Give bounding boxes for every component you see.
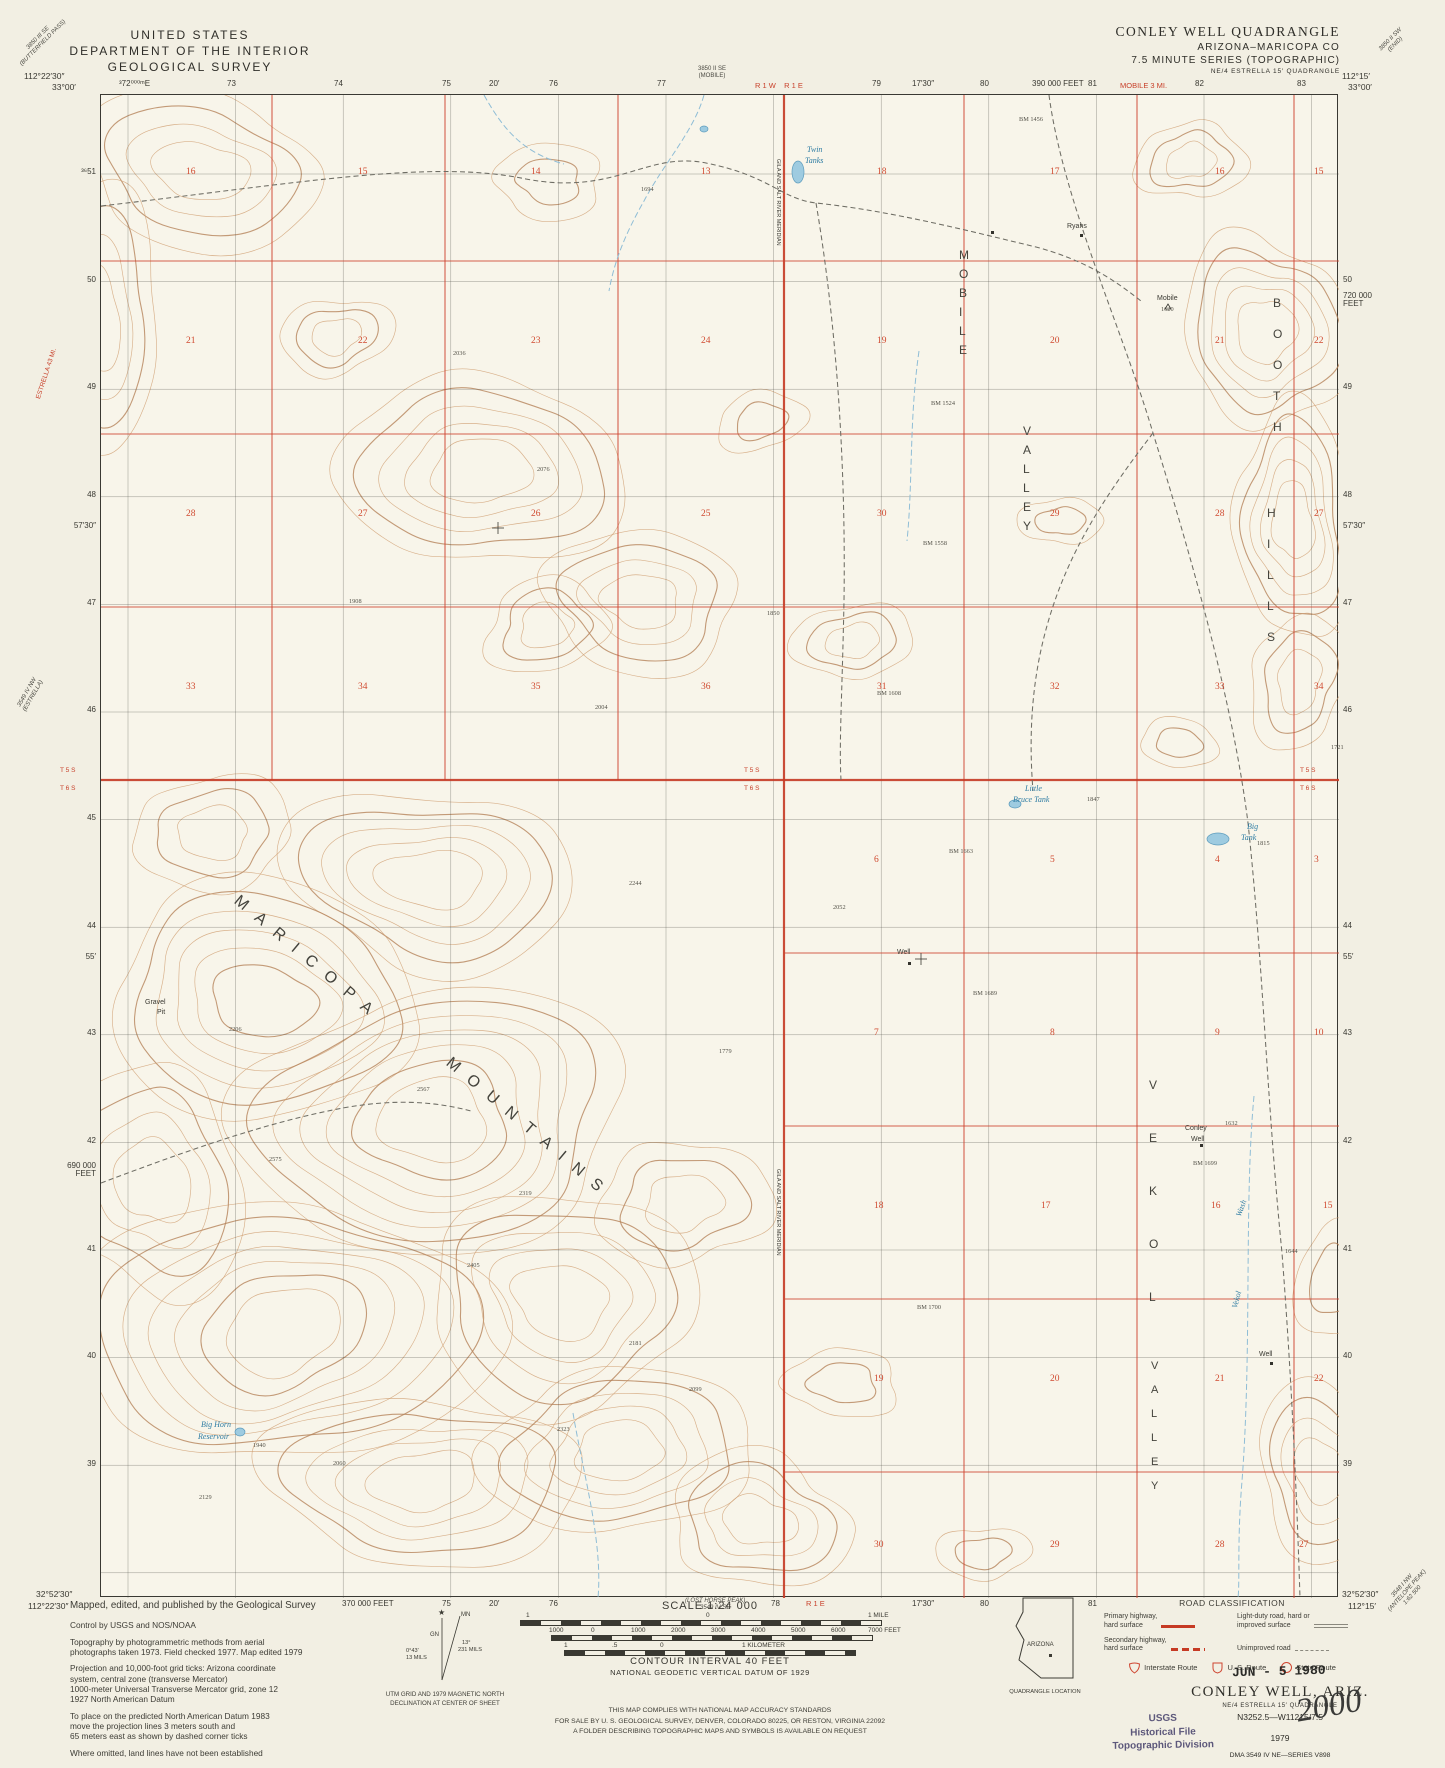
road-class-label: Secondary highway, hard surface: [1104, 1637, 1167, 1655]
grid-tick-left: 47: [58, 599, 96, 607]
section-number: 7: [874, 1029, 879, 1039]
spot-elevation: 2181: [629, 1341, 642, 1348]
agency-line-1: UNITED STATES: [60, 28, 320, 42]
section-number: 24: [701, 337, 711, 347]
physiographic-name-letter: V: [1151, 1361, 1158, 1373]
road-class-item: Unimproved road: [1237, 1637, 1360, 1655]
sheet-name: CONLEY WELL, ARIZ.: [1150, 1684, 1410, 1701]
map-canvas: [101, 95, 1339, 1598]
section-number: 14: [531, 168, 541, 178]
spot-elevation: 1847: [1087, 797, 1100, 804]
grid-tick-left: 48: [58, 491, 96, 499]
feature-label: Pit: [157, 1009, 165, 1016]
spot-elevation: 2004: [595, 705, 608, 712]
township-label: T 5 S: [744, 768, 759, 775]
section-number: 10: [1314, 1029, 1324, 1039]
scale-heading: SCALE 1:24 000: [460, 1600, 960, 1612]
spot-elevation: 2099: [689, 1387, 702, 1394]
grid-tick-top: 74: [334, 80, 343, 88]
quad-title: CONLEY WELL QUADRANGLE: [920, 24, 1340, 40]
physiographic-name-letter: H: [1273, 421, 1282, 434]
section-number: 22: [358, 337, 368, 347]
usgs-historical-stamp: USGSHistorical FileTopographic Division: [1078, 1711, 1249, 1754]
sheet-subtitle: NE/4 ESTRELLA 15′ QUADRANGLE: [1150, 1703, 1410, 1709]
grid-tick-right: 48: [1343, 491, 1352, 499]
feature-label: Conley: [1185, 1125, 1207, 1132]
grid-tick-top: ³72⁰⁰⁰ᵐE: [119, 80, 150, 88]
physiographic-name-letter: E: [1151, 1457, 1158, 1469]
grid-tick-bottom: 81: [1088, 1600, 1097, 1608]
township-label: T 5 S: [60, 768, 75, 775]
grid-tick-left: 50: [58, 276, 96, 284]
water-feature-label: Big: [1247, 823, 1258, 831]
spot-elevation: 2052: [833, 905, 846, 912]
section-number: 27: [1299, 1541, 1309, 1551]
agency-line-3: GEOLOGICAL SURVEY: [60, 60, 320, 74]
svg-text:ARIZONA: ARIZONA: [1027, 1642, 1054, 1648]
adjoining-quad-note: 3548 I NW (ANTELOPE PEAK) 1:62 500: [1382, 1564, 1434, 1618]
mn-label: MN: [461, 1612, 470, 1618]
section-number: 36: [701, 683, 711, 693]
declination-caption-1: UTM GRID AND 1979 MAGNETIC NORTH: [330, 1690, 560, 1699]
spot-elevation: 2076: [537, 467, 550, 474]
section-number: 19: [877, 337, 887, 347]
scale-feet-label: 7000 FEET: [868, 1627, 901, 1634]
physiographic-name-letter: O: [959, 268, 968, 281]
spot-elevation: 2036: [453, 351, 466, 358]
left-feet-label: 690 000 FEET: [52, 1162, 96, 1179]
section-number: 26: [531, 510, 541, 520]
grid-tick-left: 46: [58, 706, 96, 714]
section-number: 28: [1215, 510, 1225, 520]
grid-tick-right: 44: [1343, 922, 1352, 930]
scale-feet-label: 6000: [831, 1627, 845, 1634]
grid-tick-left: 57′30″: [58, 522, 96, 530]
township-label: T 6 S: [60, 786, 75, 793]
section-number: 25: [701, 510, 711, 520]
section-number: 30: [877, 510, 887, 520]
map-area: 1615141318171615212223241920212228272625…: [100, 94, 1338, 1597]
road-classification-title: ROAD CLASSIFICATION: [1104, 1598, 1360, 1608]
grid-tick-top: 390 000 FEET: [1032, 80, 1084, 88]
quadrangle-location: ARIZONA QUADRANGLE LOCATION: [1002, 1596, 1088, 1695]
spot-elevation: BM 1663: [949, 849, 973, 856]
destination-note: ESTRELLA 43 MI.: [36, 348, 59, 400]
svg-text:★: ★: [438, 1608, 445, 1617]
section-number: 8: [1050, 1029, 1055, 1039]
spot-elevation: 1815: [1257, 841, 1270, 848]
quad-location-dot: [1049, 1654, 1052, 1657]
physiographic-name-letter: L: [1151, 1433, 1157, 1445]
grid-tick-right: 40: [1343, 1352, 1352, 1360]
grid-tick-left: 42: [58, 1137, 96, 1145]
gn-label: GN: [430, 1632, 439, 1638]
compliance-note: THIS MAP COMPLIES WITH NATIONAL MAP ACCU…: [430, 1706, 1010, 1738]
scale-feet-label: 0: [591, 1627, 595, 1634]
physiographic-name-letter: I: [959, 306, 962, 319]
adjoining-quad-note: 3850 II SW (ENID): [1378, 27, 1409, 58]
scale-mile-label: 0: [706, 1612, 710, 1619]
water-feature-label: Tank: [1241, 834, 1256, 842]
grid-tick-right: 57′30″: [1343, 522, 1365, 530]
corner-coordinate: 33°00′: [1348, 83, 1372, 92]
physiographic-name-letter: L: [1023, 482, 1030, 495]
physiographic-name-letter: T: [1273, 390, 1280, 403]
scale-feet-label: 5000: [791, 1627, 805, 1634]
scale-block: SCALE 1:24 000: [460, 1600, 960, 1612]
physiographic-name-letter: Y: [1023, 520, 1031, 533]
svg-text:0°43′: 0°43′: [406, 1648, 419, 1654]
section-number: 27: [1314, 510, 1324, 520]
physiographic-name-letter: V: [1023, 425, 1031, 438]
vertical-datum-note: NATIONAL GEODETIC VERTICAL DATUM OF 1929: [460, 1668, 960, 1677]
spot-elevation: 2575: [269, 1157, 282, 1164]
spot-elevation: 1779: [719, 1049, 732, 1056]
feature-label: Well: [897, 949, 910, 956]
grid-tick-top: 76: [549, 80, 558, 88]
section-number: 29: [1050, 510, 1060, 520]
section-number: 18: [874, 1202, 884, 1212]
section-number: 3: [1314, 856, 1319, 866]
section-number: 30: [874, 1541, 884, 1551]
section-number: 19: [874, 1375, 884, 1385]
section-number: 5: [1050, 856, 1055, 866]
feature-label: GILA AND SALT RIVER MERIDIAN: [774, 1169, 780, 1256]
section-number: 13: [701, 168, 711, 178]
physiographic-name-letter: E: [1023, 501, 1031, 514]
spot-elevation: 2129: [199, 1495, 212, 1502]
quad-series: 7.5 MINUTE SERIES (TOPOGRAPHIC): [920, 55, 1340, 66]
physiographic-name-letter: V: [1149, 1079, 1157, 1092]
corner-coordinate: 112°22′30″: [28, 1602, 68, 1611]
grid-tick-top: 83: [1297, 80, 1306, 88]
topo-map-sheet: UNITED STATES DEPARTMENT OF THE INTERIOR…: [0, 0, 1445, 1768]
scale-km-label: 1: [564, 1642, 568, 1649]
feature-label: Gravel: [145, 999, 166, 1006]
water-feature-label: Little: [1025, 785, 1042, 793]
scale-bar: [551, 1635, 873, 1641]
spot-elevation: BM 1524: [931, 401, 955, 408]
grid-tick-right: 55′: [1343, 953, 1353, 961]
spot-elevation: 1632: [1225, 1121, 1238, 1128]
section-number: 28: [1215, 1541, 1225, 1551]
spot-elevation: BM 1700: [917, 1305, 941, 1312]
quadrangle-title-block: CONLEY WELL QUADRANGLE ARIZONA–MARICOPA …: [920, 24, 1340, 75]
grid-tick-top: 79: [872, 80, 881, 88]
grid-tick-right: 42: [1343, 1137, 1352, 1145]
route-marker-label: Interstate Route: [1144, 1663, 1197, 1672]
spot-elevation: 2244: [629, 881, 642, 888]
section-number: 32: [1050, 683, 1060, 693]
scale-feet-label: 1000: [549, 1627, 563, 1634]
quad-state: ARIZONA–MARICOPA CO: [920, 42, 1340, 53]
corner-coordinate: 112°15′: [1342, 72, 1370, 81]
credit-note: To place on the predicted North American…: [70, 1711, 460, 1742]
road-class-sample-unimproved: [1295, 1650, 1329, 1651]
section-number: 34: [358, 683, 368, 693]
physiographic-name-letter: A: [1023, 444, 1031, 457]
spot-elevation: BM 1689: [973, 991, 997, 998]
spot-elevation: BM 1558: [923, 541, 947, 548]
us-route-shield-icon: [1211, 1661, 1224, 1674]
grid-tick-bottom: 80: [980, 1600, 989, 1608]
road-class-label: Unimproved road: [1237, 1645, 1291, 1654]
spot-elevation: 2206: [229, 1027, 242, 1034]
spot-elevation: 1940: [253, 1443, 266, 1450]
svg-text:231 MILS: 231 MILS: [458, 1647, 482, 1653]
section-number: 17: [1050, 168, 1060, 178]
spot-elevation: 1644: [1285, 1249, 1298, 1256]
grid-tick-right: 39: [1343, 1460, 1352, 1468]
grid-tick-left: 55′: [58, 953, 96, 961]
corner-coordinate: 32°52′30″: [36, 1590, 72, 1599]
grid-tick-top: 81: [1088, 80, 1097, 88]
credit-note: Where omitted, land lines have not been …: [70, 1748, 460, 1758]
agency-header: UNITED STATES DEPARTMENT OF THE INTERIOR…: [60, 28, 320, 76]
section-number: 16: [186, 168, 196, 178]
road-class-label: Primary highway, hard surface: [1104, 1613, 1157, 1631]
water-feature-label: Big Horn: [201, 1421, 231, 1429]
scale-mile-label: 1: [526, 1612, 530, 1619]
water-feature-label: Reservoir: [198, 1433, 229, 1441]
physiographic-name-letter: Y: [1151, 1481, 1158, 1493]
section-number: 6: [874, 856, 879, 866]
physiographic-name-letter: A: [1151, 1385, 1158, 1397]
grid-tick-top: 20′: [489, 80, 499, 88]
spot-elevation: 2323: [557, 1427, 570, 1434]
date-stamp: JUN - 5 1980: [1232, 1663, 1326, 1680]
interstate-shield-icon: [1128, 1661, 1141, 1674]
section-number: 18: [877, 168, 887, 178]
section-number: 22: [1314, 1375, 1324, 1385]
sheet-dma: DMA 3549 IV NE—SERIES V898: [1150, 1752, 1410, 1759]
right-feet-label: 720 000 FEET: [1343, 292, 1372, 309]
corner-coordinate: 112°22′30″: [24, 72, 64, 81]
road-class-sample-secondary: [1171, 1648, 1205, 1651]
spot-elevation: BM 1699: [1193, 1161, 1217, 1168]
township-label: T 5 S: [1300, 768, 1315, 775]
section-number: 16: [1215, 168, 1225, 178]
physiographic-name-letter: O: [1273, 359, 1282, 372]
section-number: 15: [1314, 168, 1324, 178]
grid-tick-top: 82: [1195, 80, 1204, 88]
feature-label: Ryans: [1067, 223, 1087, 230]
grid-tick-right: 47: [1343, 599, 1352, 607]
physiographic-name-letter: I: [1267, 538, 1270, 551]
road-class-item: Primary highway, hard surface: [1104, 1613, 1227, 1631]
spot-elevation: 1694: [641, 187, 654, 194]
road-class-item: Light-duty road, hard or improved surfac…: [1237, 1613, 1360, 1631]
section-number: 21: [186, 337, 196, 347]
section-number: 33: [186, 683, 196, 693]
range-label-top: MOBILE 3 MI.: [1120, 82, 1167, 90]
physiographic-name-letter: O: [1273, 328, 1282, 341]
section-number: 27: [358, 510, 368, 520]
physiographic-name-letter: L: [1023, 463, 1030, 476]
corner-coordinate: 33°00′: [52, 83, 76, 92]
route-marker-legend: Interstate Route: [1128, 1661, 1197, 1674]
quad-subseries: NE/4 ESTRELLA 15′ QUADRANGLE: [920, 68, 1340, 75]
grid-tick-right: 50: [1343, 276, 1352, 284]
physiographic-name-letter: L: [1151, 1409, 1157, 1421]
section-number: 15: [358, 168, 368, 178]
spot-elevation: 2319: [519, 1191, 532, 1198]
physiographic-name-letter: O: [1149, 1238, 1158, 1251]
grid-tick-left: ³⁶51: [58, 168, 96, 176]
scale-km-label: .5: [612, 1642, 617, 1649]
section-number: 4: [1215, 856, 1220, 866]
compliance-line: THIS MAP COMPLIES WITH NATIONAL MAP ACCU…: [430, 1706, 1010, 1717]
water-feature-label: Tanks: [805, 157, 823, 165]
feature-label: Mobile: [1157, 295, 1178, 302]
section-number: 35: [531, 683, 541, 693]
section-number: 34: [1314, 683, 1324, 693]
grid-tick-left: 45: [58, 814, 96, 822]
section-number: 33: [1215, 683, 1225, 693]
feature-label: GILA AND SALT RIVER MERIDIAN: [774, 159, 780, 246]
water-feature-label: Twin: [807, 146, 822, 154]
arizona-outline-icon: ARIZONA: [1011, 1596, 1079, 1682]
physiographic-name-letter: L: [1149, 1291, 1156, 1304]
section-number: 21: [1215, 1375, 1225, 1385]
physiographic-name-letter: L: [959, 325, 966, 338]
road-class-item: Secondary highway, hard surface: [1104, 1637, 1227, 1655]
adjoining-quad-note: 3549 IV NW (ESTRELLA): [16, 676, 46, 713]
physiographic-name-letter: E: [1149, 1132, 1157, 1145]
physiographic-name-letter: M: [959, 249, 969, 262]
grid-tick-right: 41: [1343, 1245, 1352, 1253]
grid-tick-left: 49: [58, 383, 96, 391]
section-number: 23: [531, 337, 541, 347]
feature-label: Well: [1191, 1136, 1204, 1143]
grid-tick-right: 49: [1343, 383, 1352, 391]
grid-tick-right: 43: [1343, 1029, 1352, 1037]
scale-km-label: 1 KILOMETER: [742, 1642, 785, 1649]
physiographic-name-letter: L: [1267, 569, 1274, 582]
section-number: 22: [1314, 337, 1324, 347]
physiographic-name-letter: H: [1267, 507, 1276, 520]
grid-tick-left: 39: [58, 1460, 96, 1468]
spot-elevation: 1850: [767, 611, 780, 618]
spot-elevation: 2567: [417, 1087, 430, 1094]
spot-elevation: 2405: [467, 1263, 480, 1270]
quadrangle-location-caption: QUADRANGLE LOCATION: [1002, 1689, 1088, 1695]
section-number: 16: [1211, 1202, 1221, 1212]
road-class-sample-light: [1314, 1624, 1348, 1628]
scale-feet-label: 2000: [671, 1627, 685, 1634]
grid-tick-right: 46: [1343, 706, 1352, 714]
contour-interval-note: CONTOUR INTERVAL 40 FEET: [460, 1656, 960, 1667]
physiographic-name-letter: L: [1267, 600, 1274, 613]
scale-mile-label: 1 MILE: [868, 1612, 889, 1619]
spot-elevation: BM 1608: [877, 691, 901, 698]
grid-tick-left: 41: [58, 1245, 96, 1253]
section-number: 21: [1215, 337, 1225, 347]
grid-tick-top: 17′30″: [912, 80, 934, 88]
feature-label: Well: [1259, 1351, 1272, 1358]
agency-line-2: DEPARTMENT OF THE INTERIOR: [60, 44, 320, 58]
section-number: 15: [1323, 1202, 1333, 1212]
adjoining-note-top: 3850 II SE (MOBILE): [698, 66, 726, 80]
road-class-sample-primary: [1161, 1625, 1195, 1628]
grid-tick-left: 43: [58, 1029, 96, 1037]
section-number: 17: [1041, 1202, 1051, 1212]
township-label: T 6 S: [1300, 786, 1315, 793]
physiographic-name-letter: K: [1149, 1185, 1157, 1198]
scale-feet-label: 3000: [711, 1627, 725, 1634]
spot-elevation: 2060: [333, 1461, 346, 1468]
spot-elevation: 1620: [1161, 307, 1174, 314]
svg-text:13 MILS: 13 MILS: [406, 1655, 427, 1661]
scale-feet-label: 1000: [631, 1627, 645, 1634]
svg-text:13°: 13°: [462, 1640, 470, 1646]
declination-diagram: ★ MN GN 0°43′ 13 MILS 13° 231 MILS: [398, 1606, 494, 1692]
spot-elevation: 1908: [349, 599, 362, 606]
section-number: 20: [1050, 1375, 1060, 1385]
scale-feet-label: 4000: [751, 1627, 765, 1634]
grid-tick-left: 44: [58, 922, 96, 930]
physiographic-name-letter: E: [959, 344, 967, 357]
range-label-top: R 1 W R 1 E: [755, 82, 803, 90]
grid-tick-top: 73: [227, 80, 236, 88]
grid-tick-top: 77: [657, 80, 666, 88]
scale-bar: [520, 1620, 882, 1626]
grid-tick-top: 75: [442, 80, 451, 88]
physiographic-name-letter: S: [1267, 631, 1275, 644]
physiographic-name-letter: B: [959, 287, 967, 300]
spot-elevation: BM 1456: [1019, 117, 1043, 124]
spot-elevation: 1721: [1331, 745, 1344, 752]
grid-tick-top: 80: [980, 80, 989, 88]
compliance-line: FOR SALE BY U. S. GEOLOGICAL SURVEY, DEN…: [430, 1717, 1010, 1728]
section-number: 28: [186, 510, 196, 520]
compliance-line: A FOLDER DESCRIBING TOPOGRAPHIC MAPS AND…: [430, 1727, 1010, 1738]
water-feature-label: Bruce Tank: [1013, 796, 1049, 804]
physiographic-name-letter: B: [1273, 297, 1281, 310]
section-number: 29: [1050, 1541, 1060, 1551]
scale-km-label: 0: [660, 1642, 664, 1649]
grid-tick-left: 40: [58, 1352, 96, 1360]
road-class-label: Light-duty road, hard or improved surfac…: [1237, 1613, 1310, 1631]
section-number: 9: [1215, 1029, 1220, 1039]
township-label: T 6 S: [744, 786, 759, 793]
section-number: 20: [1050, 337, 1060, 347]
